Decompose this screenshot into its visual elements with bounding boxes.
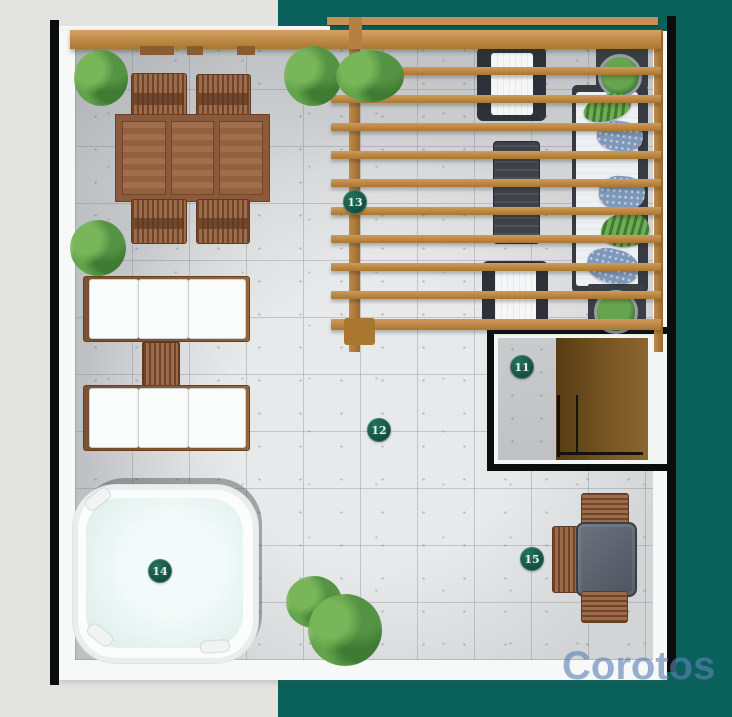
dining-chair [131,73,187,120]
room-marker-13: 13 [343,190,367,214]
potted-plant [284,46,342,106]
potted-plant [70,220,126,276]
pergola-rail-foot [344,318,375,345]
pergola-slat [331,319,661,330]
beam-bracket [187,46,203,55]
room-marker-12: 12 [367,418,391,442]
pergola-slat [331,179,661,187]
potted-plant [74,50,128,106]
pergola-slat [331,151,661,159]
round-planter [598,54,642,98]
lounge-cushion [188,388,246,448]
chair-fold-band [199,218,247,229]
lounge-cushion [188,279,246,339]
dining-chair [131,199,187,244]
room-marker-11: 11 [510,355,534,379]
pergola-slat [331,123,661,131]
left-wall [50,20,59,685]
pergola-slat [331,291,661,299]
armchair-cushion [491,53,533,115]
room-11-wood-area [556,338,648,460]
jacuzzi-pillow [200,639,231,654]
chair-fold-band [134,93,184,105]
table-plank-section [219,121,263,195]
pergola-slat [331,235,661,243]
bistro-table [576,522,637,597]
room-11-detail-line [557,452,643,455]
side-table [142,341,180,387]
room-marker-14: 14 [148,559,172,583]
pergola-post [349,17,362,49]
pergola-slat [331,207,661,215]
beam-bracket [140,46,174,55]
dining-chair [196,199,250,244]
pergola-right-rail [654,30,663,352]
room-11-detail-line [557,395,560,457]
potted-plant [308,594,382,666]
dining-table [115,114,270,202]
bistro-chair [581,591,628,623]
beam-bracket [237,46,255,55]
room-11-detail-line [576,395,578,455]
table-plank-section [122,121,166,195]
room-marker-15: 15 [520,547,544,571]
table-plank-section [171,121,215,195]
lounge-cushion [89,388,139,448]
pergola-top-rail [327,17,658,25]
chair-fold-band [199,93,248,104]
pergola-slat [331,263,661,271]
potted-plant [336,50,404,102]
corotos-watermark: Corotos [562,644,715,689]
floorplan-canvas: 11 12 13 14 15 Corotos [0,0,732,717]
lounge-cushion [138,279,189,339]
lounge-cushion [138,388,189,448]
chair-fold-band [134,218,184,229]
lounge-cushion [89,279,139,339]
